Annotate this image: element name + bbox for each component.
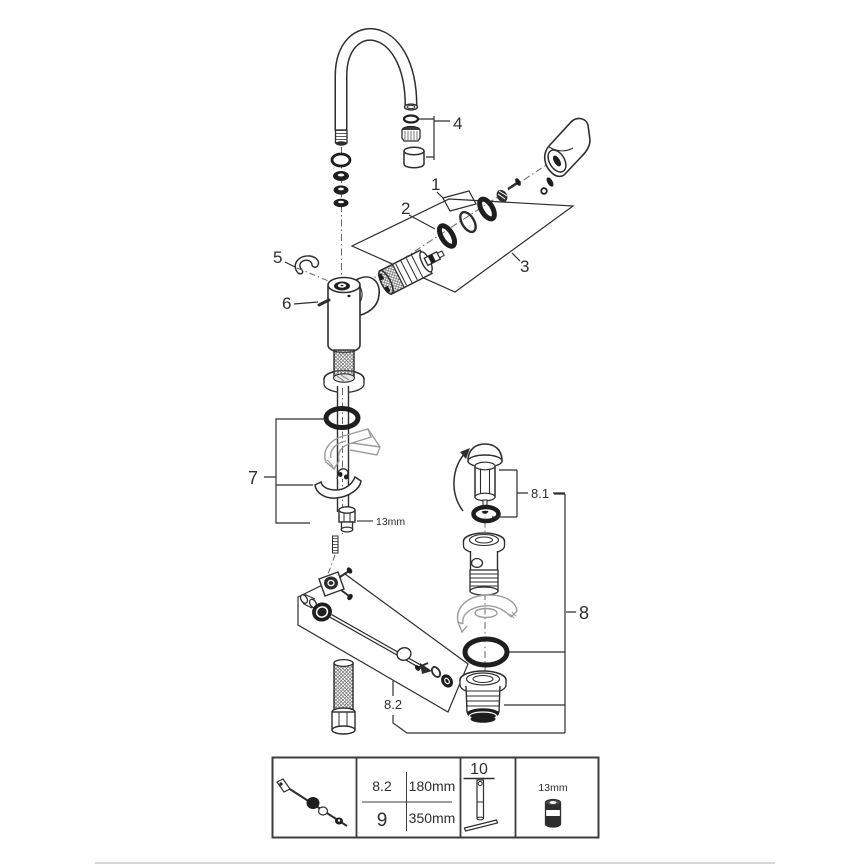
retainer-clip [295,256,318,274]
table-socket-label: 13mm [538,782,567,794]
handle-lever [544,118,590,176]
callout-3-label: 3 [520,257,529,276]
callout-1-label: 1 [431,175,440,194]
callout-4-label: 4 [453,114,462,133]
aerator-group [402,116,424,168]
nut-size-label: 13mm [376,516,405,528]
protective-cap [325,429,380,469]
exploded-parts-diagram: 3 4 [0,0,868,868]
drain-upper-body [464,533,505,595]
drain-lower-body [460,671,506,723]
supply-hose [332,660,355,734]
stud-bolt [327,536,338,577]
handle-plug [541,188,547,194]
parts-table: 8.2 180mm 9 350mm 10 13mm [273,758,599,838]
cartridge [376,242,449,296]
plug-seal [474,507,499,521]
spout-oring-stack [332,154,350,207]
aerator-oring [404,116,418,123]
diagram-page: 3 4 [0,0,868,868]
mounting-nut: 13mm [339,507,405,532]
callout-5: 5 [273,248,331,282]
callout-8-1-label: 8.1 [531,486,549,501]
table-ref-1: 9 [377,810,388,831]
thin-oring [457,209,479,234]
handle-axis-parts [436,176,555,248]
cap-ring [477,197,498,222]
table-ref-0: 8.2 [372,778,392,794]
callout-1: 1 [431,175,476,211]
callout-7-label: 7 [248,468,258,488]
faucet-body [319,277,379,353]
drain-plug [454,444,502,521]
callout-7-bracket [264,419,325,523]
rod-seal [439,672,456,690]
handle-spring [545,176,555,188]
table-tool-label: 10 [470,761,488,778]
callout-6: 6 [282,294,318,313]
drain-washer [458,595,517,632]
rod-oring [430,665,442,678]
rotation-arrow [454,452,466,511]
drain-oring-large [465,639,507,665]
callout-8-label: 8 [579,603,589,623]
callout-6-label: 6 [282,294,291,313]
handle-screw-shaft [508,183,517,189]
table-cell-lengths: 8.2 180mm 9 350mm [362,772,455,831]
cartridge-seal-ring [436,223,457,248]
callout-8-2-label: 8.2 [384,697,402,712]
callout-5-label: 5 [273,248,282,267]
callout-8-1-bracket [492,470,565,517]
center-axes [342,147,555,716]
table-length-1: 350mm [409,810,456,826]
table-length-0: 180mm [409,778,456,794]
spout-threaded-tip [336,130,348,143]
